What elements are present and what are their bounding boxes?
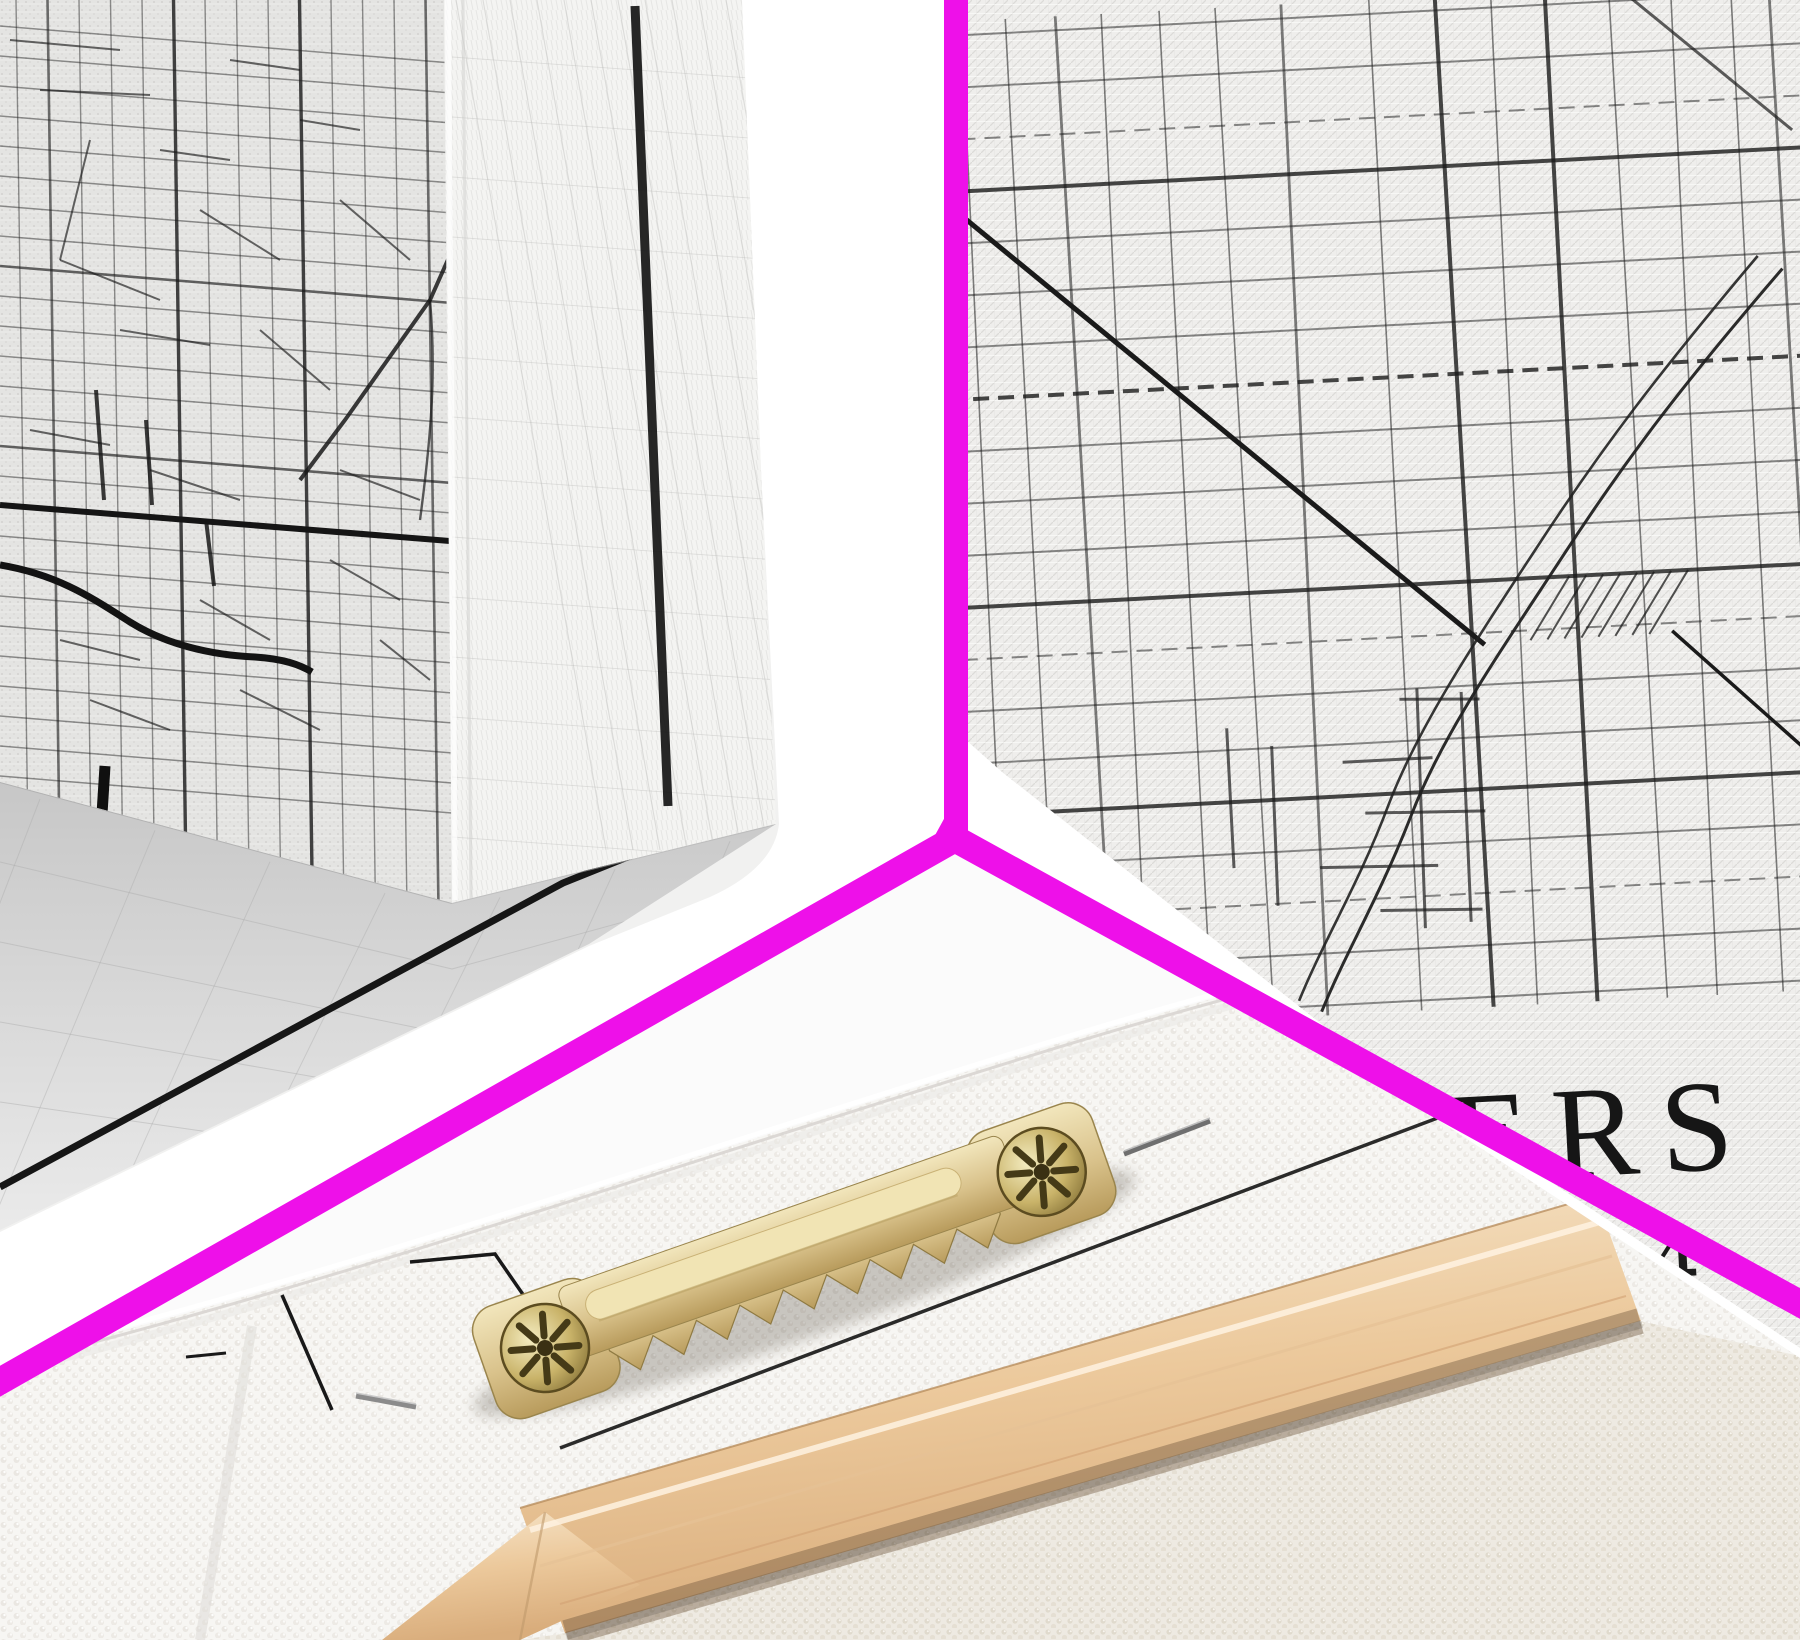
collage-image: ERS 04 [0, 0, 1800, 1640]
texture-line [753, 0, 903, 850]
canvas-side-face [440, 0, 903, 915]
product-photo-collage: ERS 04 [0, 0, 1800, 1640]
